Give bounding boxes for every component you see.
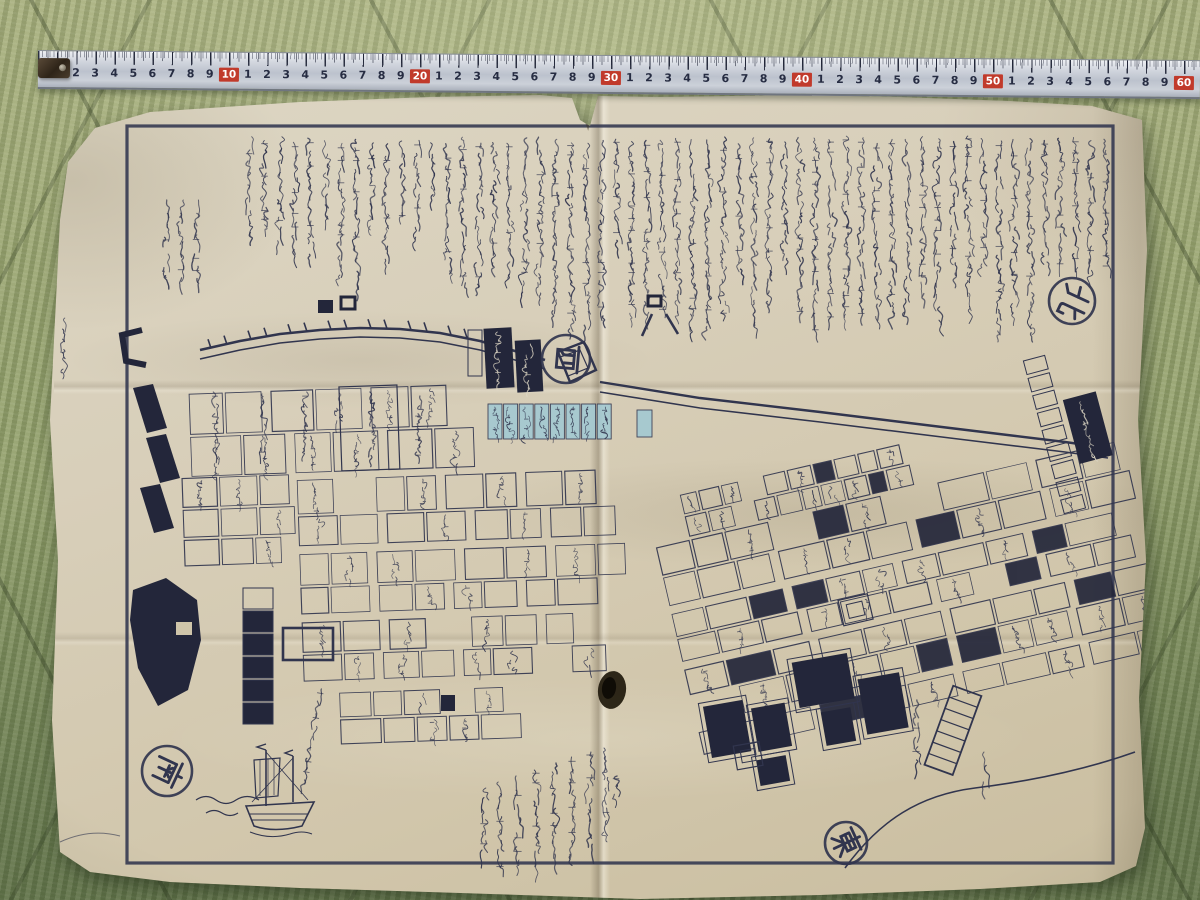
- sailing-ship-drawing: [196, 744, 314, 837]
- city-block: [427, 511, 466, 541]
- city-block: [464, 548, 504, 580]
- city-block: [572, 645, 606, 672]
- city-block: [484, 581, 517, 608]
- city-block: [222, 538, 254, 565]
- city-block: [777, 491, 803, 515]
- city-block: [303, 654, 342, 681]
- city-block: [505, 615, 537, 645]
- tape-minor-number: 8: [378, 69, 386, 82]
- city-block: [938, 543, 988, 576]
- legend-day-colour-key: [163, 200, 201, 294]
- city-block: [475, 510, 508, 540]
- city-block: [584, 506, 616, 536]
- map-artwork: [0, 0, 1200, 900]
- tape-major-number: 50: [983, 74, 1003, 88]
- tape-minor-number: 5: [129, 67, 137, 80]
- tape-major-number: 20: [410, 69, 430, 83]
- city-block: [550, 507, 581, 537]
- city-block: [844, 475, 870, 499]
- gate-marks: [122, 296, 678, 382]
- city-block: [301, 587, 329, 614]
- city-block: [260, 507, 296, 535]
- city-block: [387, 429, 433, 470]
- tape-minor-number: 9: [970, 74, 978, 87]
- moat-strips: [133, 384, 180, 533]
- city-block: [813, 460, 835, 483]
- tape-minor-number: 4: [874, 73, 882, 86]
- city-block: [685, 512, 710, 536]
- city-block: [801, 486, 822, 509]
- black-cell-strip: [243, 588, 273, 724]
- tape-minor-number: 2: [72, 66, 80, 79]
- city-block: [868, 471, 887, 494]
- tape-minor-number: 8: [187, 67, 195, 80]
- city-block: [725, 522, 774, 559]
- tape-minor-number: 3: [664, 71, 672, 84]
- paper-surface: [0, 0, 1200, 900]
- city-block: [526, 471, 563, 506]
- city-block: [387, 513, 425, 543]
- tape-minor-number: 7: [932, 74, 940, 87]
- city-block: [373, 691, 401, 716]
- ryogoku-bridge: [912, 686, 981, 779]
- city-block: [697, 562, 740, 598]
- city-block: [761, 612, 802, 642]
- city-block: [963, 663, 1004, 693]
- city-block: [183, 509, 219, 537]
- tape-minor-number: 7: [550, 70, 558, 83]
- tape-minor-number: 3: [282, 68, 290, 81]
- tape-minor-number: 3: [855, 73, 863, 86]
- tape-minor-number: 2: [836, 73, 844, 86]
- city-block: [950, 600, 995, 634]
- city-block: [792, 580, 828, 609]
- city-block: [260, 475, 290, 505]
- tape-minor-number: 5: [320, 68, 328, 81]
- city-block: [510, 509, 541, 539]
- tape-end-hook: [38, 58, 70, 78]
- city-block: [749, 589, 788, 619]
- tape-minor-number: 2: [263, 68, 271, 81]
- annotation-diagonal: [299, 688, 324, 794]
- city-block: [341, 719, 382, 744]
- city-block: [407, 476, 437, 510]
- tape-minor-number: 9: [397, 69, 405, 82]
- city-block: [422, 650, 455, 677]
- city-block: [1034, 582, 1070, 613]
- city-block: [886, 465, 914, 490]
- tape-minor-number: 2: [645, 71, 653, 84]
- city-block: [657, 540, 696, 575]
- tape-minor-number: 5: [1084, 75, 1092, 88]
- city-block: [1065, 513, 1116, 546]
- city-block: [699, 486, 723, 509]
- city-block: [225, 392, 262, 433]
- city-block: [956, 627, 1001, 662]
- city-block: [389, 619, 426, 650]
- tape-minor-number: 1: [435, 69, 443, 82]
- tape-minor-number: 3: [1046, 75, 1054, 88]
- city-block: [526, 579, 555, 606]
- city-block: [333, 431, 379, 472]
- city-block: [778, 541, 830, 579]
- city-block: [737, 554, 775, 589]
- city-block: [415, 549, 455, 581]
- city-block: [672, 607, 708, 636]
- city-block: [813, 505, 849, 539]
- city-block: [445, 474, 484, 509]
- tape-minor-number: 1: [817, 73, 825, 86]
- tape-minor-number: 5: [702, 72, 710, 85]
- tape-minor-number: 5: [511, 70, 519, 83]
- city-block: [685, 661, 729, 694]
- city-block: [340, 514, 378, 544]
- city-block: [908, 674, 958, 706]
- tape-minor-number: 6: [1103, 75, 1111, 88]
- city-block: [376, 477, 405, 511]
- tape-minor-number: 5: [893, 73, 901, 86]
- city-block: [546, 613, 574, 643]
- city-block: [340, 692, 372, 717]
- city-block: [1074, 572, 1116, 605]
- tape-minor-number: 2: [454, 70, 462, 83]
- city-block: [184, 539, 219, 566]
- tape-minor-number: 7: [359, 69, 367, 82]
- tape-minor-number: 9: [1161, 76, 1169, 89]
- city-block: [557, 578, 597, 605]
- calligraphy-text-block: [245, 136, 1111, 342]
- city-block: [986, 533, 1028, 564]
- city-block: [300, 554, 329, 586]
- margin-label: [61, 318, 68, 379]
- city-block: [1005, 557, 1041, 586]
- roads: [200, 319, 1108, 458]
- tape-major-number: 30: [601, 71, 621, 85]
- city-block: [189, 393, 223, 434]
- compass-south: [142, 746, 192, 796]
- city-block: [598, 543, 626, 575]
- tape-minor-number: 7: [168, 67, 176, 80]
- river-gate-strip: [1023, 345, 1124, 514]
- tape-number-row: 1234567891012345678920123456789301234567…: [38, 51, 1200, 97]
- city-block: [377, 551, 413, 583]
- tape-minor-number: 6: [912, 74, 920, 87]
- city-block: [986, 463, 1032, 499]
- compass-north: [1049, 278, 1095, 324]
- tape-minor-number: 8: [569, 71, 577, 84]
- city-block: [417, 716, 447, 741]
- city-block: [664, 571, 701, 606]
- pond-dark-area: [130, 578, 201, 706]
- tape-minor-number: 4: [1065, 75, 1073, 88]
- old-map-sheet: [0, 0, 1200, 900]
- city-block: [821, 481, 846, 505]
- estate-labels: [212, 392, 424, 467]
- compass-east: [825, 822, 867, 864]
- river-shoreline: [60, 752, 1135, 868]
- city-block: [916, 638, 952, 671]
- city-block: [297, 479, 334, 514]
- city-block: [463, 649, 491, 676]
- tape-minor-number: 4: [683, 72, 691, 85]
- city-block: [858, 451, 878, 473]
- city-block: [1137, 621, 1185, 653]
- blue-highlight-cells: [488, 404, 652, 443]
- city-block: [1113, 561, 1161, 595]
- tape-minor-number: 3: [91, 66, 99, 79]
- city-block: [998, 491, 1046, 528]
- photo-scene: 1234567891012345678920123456789301234567…: [0, 0, 1200, 900]
- city-block: [889, 582, 932, 613]
- city-block: [866, 522, 912, 559]
- tape-major-number: 10: [219, 68, 239, 82]
- tape-minor-number: 4: [492, 70, 500, 83]
- city-block: [343, 620, 380, 651]
- tape-minor-number: 8: [1142, 76, 1150, 89]
- city-block: [379, 584, 413, 611]
- city-block: [1032, 524, 1067, 553]
- black-title-cartouche: [468, 327, 543, 396]
- city-block: [680, 492, 700, 514]
- city-block: [221, 508, 258, 536]
- city-block: [454, 582, 482, 609]
- tape-major-number: 60: [1174, 76, 1194, 90]
- city-block: [957, 501, 1002, 537]
- city-block: [904, 611, 946, 644]
- tape-minor-number: 8: [760, 72, 768, 85]
- honjo-label: [982, 752, 989, 799]
- city-block: [834, 455, 859, 478]
- city-block: [295, 433, 332, 473]
- city-block: [763, 471, 788, 494]
- city-block: [678, 631, 720, 661]
- city-block: [556, 544, 596, 576]
- tape-minor-number: 4: [110, 67, 118, 80]
- tape-minor-number: 9: [206, 67, 214, 80]
- city-block: [331, 552, 368, 584]
- tape-minor-number: 7: [741, 72, 749, 85]
- tape-minor-number: 1: [244, 68, 252, 81]
- tape-minor-number: 3: [473, 70, 481, 83]
- city-block: [692, 533, 728, 567]
- city-block: [937, 572, 974, 601]
- tape-minor-number: 7: [1123, 75, 1131, 88]
- tape-minor-number: 1: [626, 71, 634, 84]
- tape-minor-number: 4: [301, 68, 309, 81]
- tape-minor-number: 1: [1008, 74, 1016, 87]
- city-block: [384, 717, 415, 742]
- city-block: [481, 714, 521, 739]
- tape-major-number: 40: [792, 73, 812, 87]
- city-block: [1048, 645, 1084, 674]
- tape-minor-number: 9: [588, 71, 596, 84]
- city-block: [862, 564, 897, 593]
- tape-minor-number: 6: [530, 70, 538, 83]
- city-block: [298, 516, 338, 546]
- city-block: [1002, 653, 1050, 685]
- tape-minor-number: 9: [779, 72, 787, 85]
- city-block: [807, 603, 843, 632]
- tape-minor-number: 6: [339, 69, 347, 82]
- city-block: [827, 532, 870, 568]
- city-block: [404, 690, 440, 715]
- city-block: [916, 511, 960, 547]
- city-block: [256, 537, 282, 563]
- city-block: [475, 687, 504, 712]
- tape-minor-number: 6: [721, 72, 729, 85]
- map-border-frame: [127, 126, 1113, 863]
- tape-minor-number: 6: [149, 67, 157, 80]
- city-block: [840, 591, 891, 623]
- tape-minor-number: 2: [1027, 75, 1035, 88]
- city-block: [331, 586, 370, 613]
- city-block: [1122, 589, 1166, 624]
- tape-minor-number: 8: [951, 74, 959, 87]
- city-block: [993, 590, 1037, 623]
- compass-west: [542, 335, 590, 383]
